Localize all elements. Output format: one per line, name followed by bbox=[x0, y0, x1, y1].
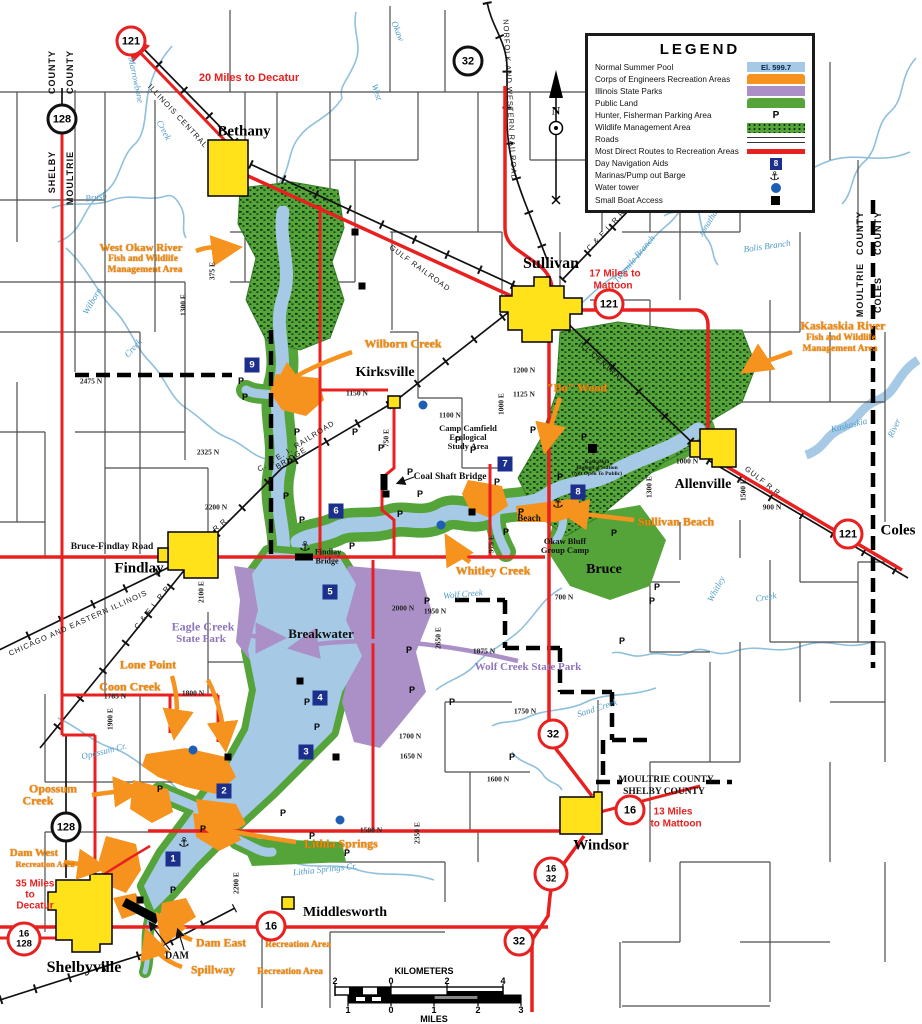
day-navigation-aid-7: 7 bbox=[498, 457, 513, 472]
route-shield-16-32: 1632 bbox=[534, 857, 569, 892]
legend-row-marinas: Marinas/Pump out Barge⚓ bbox=[588, 170, 812, 182]
scale-km-tick: 2 bbox=[444, 976, 449, 986]
parking-marker: P bbox=[417, 489, 423, 499]
or-label: Dam West bbox=[10, 847, 58, 859]
bk-label: (Not Open To Public) bbox=[572, 471, 622, 477]
parking-marker: P bbox=[406, 645, 412, 655]
small-boat-access-marker bbox=[359, 283, 366, 290]
town-label: Windsor bbox=[573, 838, 629, 855]
gr-label: 375 E bbox=[208, 262, 217, 280]
parking-marker: P bbox=[352, 427, 358, 437]
parking-marker: P bbox=[299, 515, 305, 525]
co-label: SHELBY bbox=[47, 151, 57, 194]
legend-row-public-land: Public Land bbox=[588, 97, 812, 109]
parking-marker: P bbox=[557, 472, 563, 482]
parking-marker: P bbox=[470, 445, 476, 455]
small-boat-access-marker bbox=[333, 754, 340, 761]
small-boat-access-marker bbox=[137, 897, 144, 904]
or-label: Dam East bbox=[196, 936, 246, 951]
gr-label: 1785 N bbox=[104, 692, 126, 701]
or-label: Spillway bbox=[191, 963, 235, 978]
or-label: Fish and Wildlife bbox=[108, 254, 178, 264]
gr-label: 2200 E bbox=[232, 872, 241, 894]
gr-label: 1125 N bbox=[513, 390, 535, 399]
co-label: MOULTRIE bbox=[855, 263, 865, 317]
parking-marker: P bbox=[649, 596, 655, 606]
bk-label: Coal Shaft Bridge bbox=[414, 472, 487, 482]
parking-marker: P bbox=[581, 432, 587, 442]
gr-label: 2325 N bbox=[197, 448, 219, 457]
scale-km-tick: 0 bbox=[388, 976, 393, 986]
parking-marker: P bbox=[619, 636, 625, 646]
parking-marker: P bbox=[309, 831, 315, 841]
marina-anchor-icon: ⚓ bbox=[178, 836, 190, 851]
or-label: West Okaw River bbox=[99, 242, 182, 254]
gr-label: 975 E bbox=[487, 535, 496, 553]
co-label: COUNTY bbox=[65, 50, 75, 94]
scale-km-tick: 4 bbox=[500, 976, 505, 986]
route-shield-16: 16 bbox=[256, 911, 287, 942]
parking-marker: P bbox=[449, 697, 455, 707]
small-boat-access-marker bbox=[469, 509, 476, 516]
scale-miles-label: MILES bbox=[420, 1014, 448, 1024]
town-label: Coles bbox=[881, 523, 916, 540]
day-navigation-aid-8: 8 bbox=[571, 485, 586, 500]
bk-label: Study Area bbox=[448, 441, 489, 451]
gr-label: 700 N bbox=[555, 593, 574, 602]
bk-label: Bridge bbox=[315, 557, 338, 566]
parking-marker: P bbox=[378, 443, 384, 453]
boat-access-swatch bbox=[771, 196, 780, 205]
parking-marker: P bbox=[283, 491, 289, 501]
parking-marker: P bbox=[409, 685, 415, 695]
gr-label: 2475 N bbox=[80, 377, 102, 386]
corps-swatch bbox=[747, 74, 805, 84]
gr-label: 1875 N bbox=[473, 647, 495, 656]
town-label: Shelbyville bbox=[47, 959, 122, 977]
parking-symbol: P bbox=[747, 110, 805, 121]
parking-marker: P bbox=[654, 582, 660, 592]
gr-label: 1750 N bbox=[514, 707, 536, 716]
parking-marker: P bbox=[200, 824, 206, 834]
legend-row-water-tower: Water tower bbox=[588, 182, 812, 194]
road-swatch bbox=[747, 137, 805, 143]
or-label: Wilborn Creek bbox=[364, 337, 441, 352]
co-label: COLES bbox=[873, 277, 883, 313]
route-shield-16-128: 16128 bbox=[7, 922, 42, 957]
route-shield-128: 128 bbox=[51, 812, 82, 843]
red-label: 20 Miles to Decatur bbox=[199, 72, 299, 84]
breakwater-label: Breakwater bbox=[288, 626, 353, 642]
small-boat-access-marker bbox=[589, 446, 596, 453]
red-label: 13 Miles bbox=[654, 807, 693, 818]
parking-marker: P bbox=[170, 885, 176, 895]
parking-marker: P bbox=[287, 457, 293, 467]
route-shield-128: 128 bbox=[47, 104, 78, 135]
wma-swatch bbox=[747, 123, 805, 133]
day-navigation-aid-4: 4 bbox=[313, 691, 328, 706]
parking-marker: P bbox=[494, 477, 500, 487]
day-navigation-aid-5: 5 bbox=[323, 585, 338, 600]
small-boat-access-marker bbox=[383, 491, 390, 498]
gr-label: 1600 N bbox=[487, 775, 509, 784]
water-tower-marker bbox=[437, 521, 446, 530]
gr-label: 2100 E bbox=[197, 581, 206, 603]
town-label: Allenville bbox=[675, 477, 732, 493]
marina-anchor-icon: ⚓ bbox=[299, 540, 311, 555]
parking-marker: P bbox=[455, 435, 461, 445]
town-label: Bethany bbox=[217, 124, 270, 141]
legend: LEGEND Normal Summer PoolEl. 599.7 Corps… bbox=[585, 33, 815, 213]
parking-marker: P bbox=[280, 808, 286, 818]
gr-label: 1000 E bbox=[497, 393, 506, 415]
public-land-swatch bbox=[747, 98, 805, 108]
legend-row-boat-access: Small Boat Access bbox=[588, 194, 812, 206]
scale-mile-tick: 3 bbox=[518, 1005, 523, 1015]
day-navigation-aid-3: 3 bbox=[299, 745, 314, 760]
gr-label: 2650 E bbox=[434, 627, 443, 649]
gr-label: 1300 E bbox=[179, 294, 188, 316]
water-tower-marker bbox=[336, 816, 345, 825]
or-label: Kaskaskia River bbox=[800, 319, 885, 334]
legend-row-normal-summer-pool: Normal Summer PoolEl. 599.7 bbox=[588, 61, 812, 73]
parking-marker: P bbox=[304, 697, 310, 707]
route-shield-16: 16 bbox=[615, 795, 646, 826]
parking-marker: P bbox=[397, 509, 403, 519]
route-shield-32: 32 bbox=[453, 46, 484, 77]
bk-label: MOULTRIE COUNTY bbox=[618, 775, 713, 785]
gr-label: 900 N bbox=[763, 503, 782, 512]
gr-label: 2200 N bbox=[205, 503, 227, 512]
parking-marker: P bbox=[344, 848, 350, 858]
legend-row-parking: Hunter, Fisherman Parking AreaP bbox=[588, 109, 812, 121]
parking-marker: P bbox=[349, 541, 355, 551]
co-label: MOULTRIE bbox=[65, 151, 75, 205]
parking-marker: P bbox=[314, 722, 320, 732]
gr-label: 1900 E bbox=[106, 708, 115, 730]
parking-marker: P bbox=[407, 467, 413, 477]
parking-marker: P bbox=[611, 528, 617, 538]
day-navigation-aid-6: 6 bbox=[329, 504, 344, 519]
or-label: Lithia Springs bbox=[304, 837, 378, 852]
parking-marker: P bbox=[530, 425, 536, 435]
gr-label: 1100 N bbox=[439, 411, 461, 420]
route-shield-32: 32 bbox=[504, 926, 535, 957]
water-tower-marker bbox=[419, 401, 428, 410]
bk-label: Findlay bbox=[315, 548, 341, 557]
water-tower-marker bbox=[189, 746, 198, 755]
scale-mile-tick: 1 bbox=[431, 1005, 436, 1015]
parking-marker: P bbox=[294, 427, 300, 437]
compass-north-label: N bbox=[552, 104, 561, 119]
or-label: "Bo" Wood bbox=[547, 381, 607, 396]
or-label: Management Area bbox=[802, 344, 877, 354]
scale-mile-tick: 2 bbox=[475, 1005, 480, 1015]
legend-row-state-parks: Illinois State Parks bbox=[588, 85, 812, 97]
compass-rose bbox=[549, 70, 563, 204]
co-label: COUNTY bbox=[855, 211, 865, 255]
or-label: Lone Point bbox=[120, 658, 176, 673]
marina-anchor-icon: ⚓ bbox=[552, 497, 564, 512]
gr-label: 1200 N bbox=[513, 366, 535, 375]
gr-label: 1950 N bbox=[424, 607, 446, 616]
gr-label: 1300 E bbox=[645, 476, 654, 498]
parking-marker: P bbox=[242, 392, 248, 402]
parking-marker: P bbox=[157, 784, 163, 794]
state-park-swatch bbox=[747, 86, 805, 96]
co-label: COUNTY bbox=[873, 211, 883, 255]
co-label: COUNTY bbox=[47, 50, 57, 94]
legend-row-wma: Wildlife Management Area bbox=[588, 121, 812, 133]
parking-marker: P bbox=[518, 507, 524, 517]
small-boat-access-marker bbox=[225, 754, 232, 761]
or-label: Creek bbox=[22, 794, 53, 809]
route-shield-121: 121 bbox=[833, 519, 864, 550]
route-shield-32: 32 bbox=[538, 719, 569, 750]
gr-label: 1700 N bbox=[399, 732, 421, 741]
bk-label: Bruce-Findlay Road bbox=[71, 542, 154, 552]
legend-row-roads: Roads bbox=[588, 134, 812, 146]
scale-kilometers-label: KILOMETERS bbox=[394, 966, 453, 976]
or-label: Fish and Wildlife bbox=[806, 333, 876, 343]
scale-mile-tick: 1 bbox=[345, 1005, 350, 1015]
red-label: to bbox=[25, 890, 34, 901]
map-page: LEGEND Normal Summer PoolEl. 599.7 Corps… bbox=[0, 0, 922, 1024]
route-shield-121: 121 bbox=[594, 289, 625, 320]
small-boat-access-marker bbox=[352, 229, 359, 236]
parking-marker: P bbox=[424, 596, 430, 606]
day-navigation-aid-9: 9 bbox=[245, 358, 260, 373]
or-label: Sullivan Beach bbox=[638, 515, 714, 530]
pool-swatch: El. 599.7 bbox=[747, 62, 805, 72]
legend-row-corps-recreation: Corps of Engineers Recreation Areas bbox=[588, 73, 812, 85]
town-label: Findlay bbox=[114, 561, 163, 578]
gr-label: 1800 N bbox=[182, 689, 204, 698]
scale-bar bbox=[335, 984, 521, 1006]
day-navigation-aid-2: 2 bbox=[217, 784, 232, 799]
red-label: Decatur bbox=[16, 901, 53, 912]
or-label: Management Area bbox=[107, 265, 182, 275]
bk-label: DAM bbox=[165, 951, 189, 962]
legend-row-direct-routes: Most Direct Routes to Recreation Areas bbox=[588, 146, 812, 158]
red-route-swatch bbox=[747, 149, 805, 154]
scale-km-tick: 2 bbox=[332, 976, 337, 986]
pu-label: Wolf Creek State Park bbox=[475, 661, 581, 673]
or-label: Recreation Area bbox=[265, 940, 331, 950]
water-tower-swatch bbox=[771, 183, 781, 193]
route-shield-121: 121 bbox=[116, 26, 147, 57]
gr-label: 1150 N bbox=[346, 389, 368, 398]
small-boat-access-marker bbox=[297, 678, 304, 685]
scale-mile-tick: 0 bbox=[388, 1005, 393, 1015]
gr-label: 2350 E bbox=[413, 822, 422, 844]
anchor-icon: ⚓ bbox=[769, 169, 780, 183]
gr-label: 1500 N bbox=[360, 826, 382, 835]
parking-marker: P bbox=[238, 376, 244, 386]
or-label: Whitley Creek bbox=[456, 564, 531, 579]
or-label: Recreation Area bbox=[16, 859, 75, 869]
legend-title: LEGEND bbox=[588, 41, 812, 58]
town-label: Middlesworth bbox=[303, 905, 387, 921]
town-label: Kirksville bbox=[355, 365, 414, 381]
town-label: Bruce bbox=[586, 562, 622, 578]
day-navigation-aid-1: 1 bbox=[166, 852, 181, 867]
gr-label: 1650 N bbox=[400, 752, 422, 761]
red-label: 35 Miles bbox=[16, 879, 55, 890]
gr-label: 1000 N bbox=[676, 457, 698, 466]
parking-marker: P bbox=[509, 752, 515, 762]
town-label: Sullivan bbox=[523, 255, 579, 273]
gr-label: 1500 E bbox=[739, 479, 748, 501]
red-label: to Mattoon bbox=[650, 819, 701, 830]
gr-label: 2000 N bbox=[392, 604, 414, 613]
bk-label: Group Camp bbox=[541, 545, 589, 555]
parking-marker: P bbox=[503, 527, 509, 537]
pu-label: State Park bbox=[176, 633, 226, 645]
or-label: Recreation Area bbox=[257, 967, 323, 977]
